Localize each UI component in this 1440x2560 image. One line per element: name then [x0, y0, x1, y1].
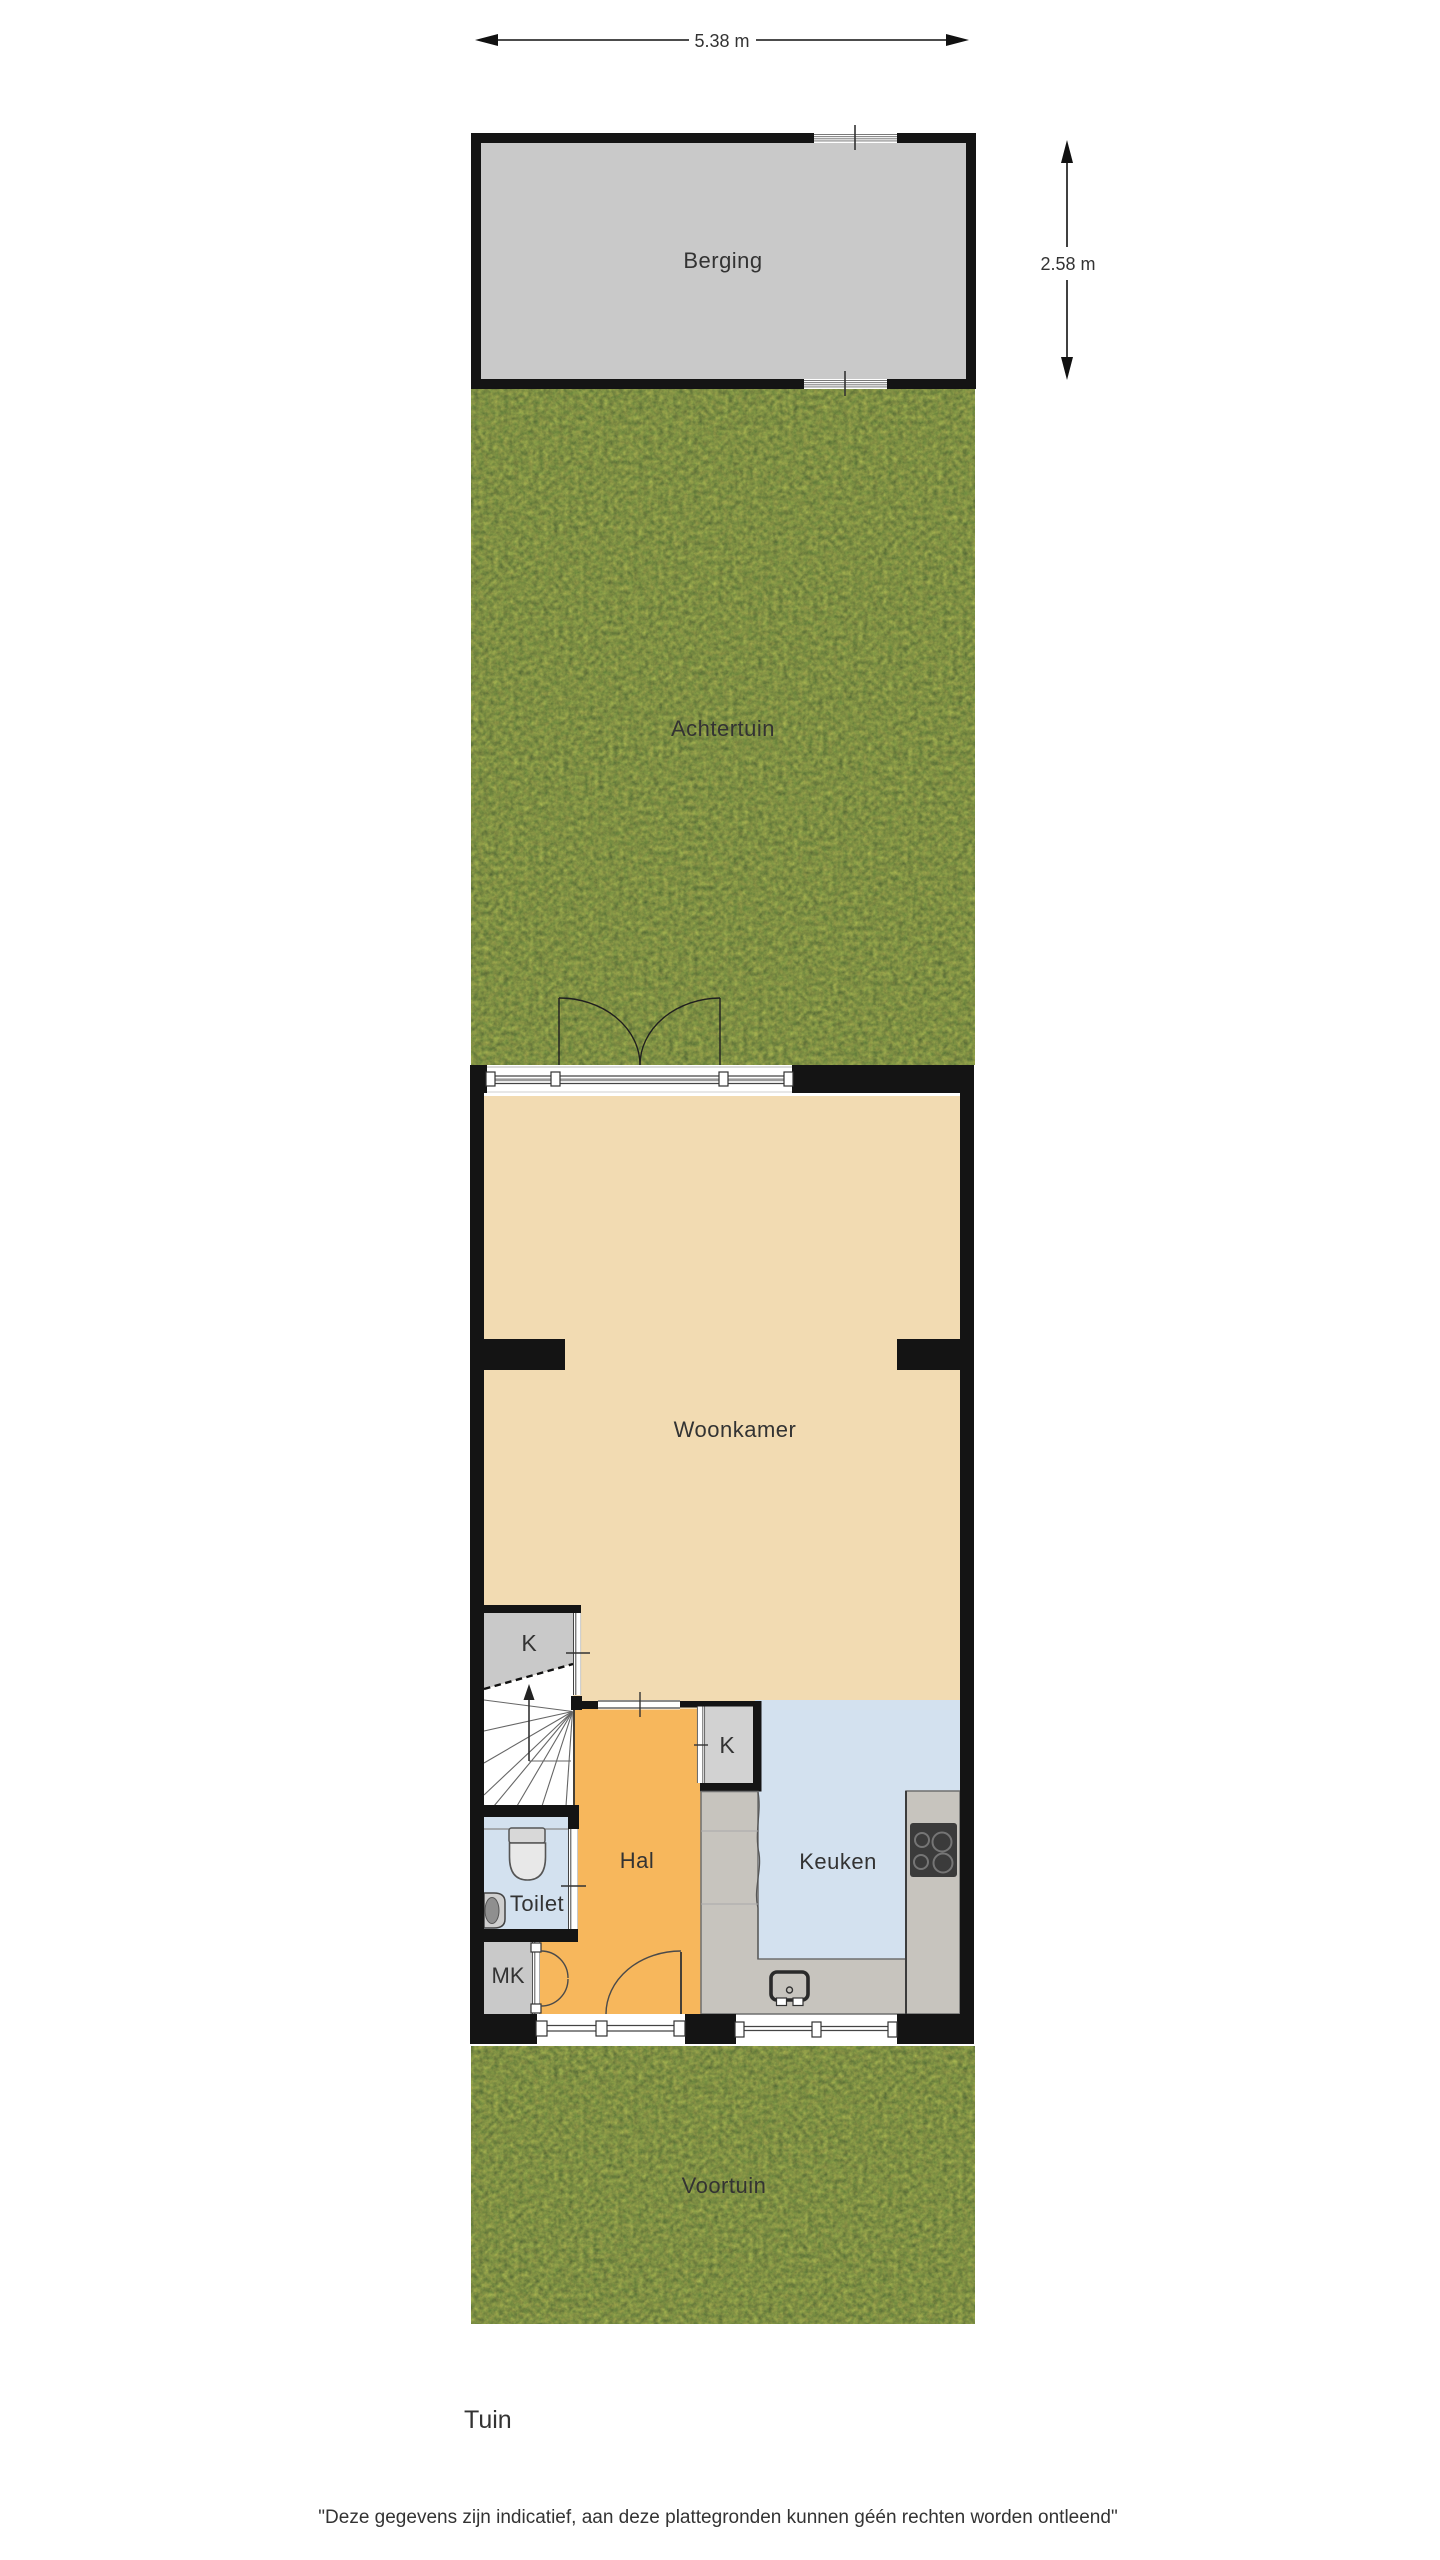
svg-text:5.38 m: 5.38 m [694, 31, 749, 51]
svg-text:"Deze gegevens zijn indicatief: "Deze gegevens zijn indicatief, aan deze… [318, 2507, 1117, 2528]
svg-text:MK: MK [492, 1963, 525, 1988]
svg-text:K: K [719, 1732, 735, 1758]
svg-text:Keuken: Keuken [799, 1849, 877, 1874]
svg-text:K: K [521, 1630, 537, 1656]
svg-text:Hal: Hal [620, 1848, 655, 1873]
svg-text:2.58 m: 2.58 m [1040, 254, 1095, 274]
svg-text:Achtertuin: Achtertuin [671, 716, 775, 741]
svg-text:Woonkamer: Woonkamer [674, 1417, 797, 1442]
svg-text:Voortuin: Voortuin [682, 2173, 767, 2198]
svg-text:Berging: Berging [683, 248, 762, 273]
svg-text:Tuin: Tuin [464, 2406, 512, 2434]
svg-text:Toilet: Toilet [510, 1891, 564, 1916]
